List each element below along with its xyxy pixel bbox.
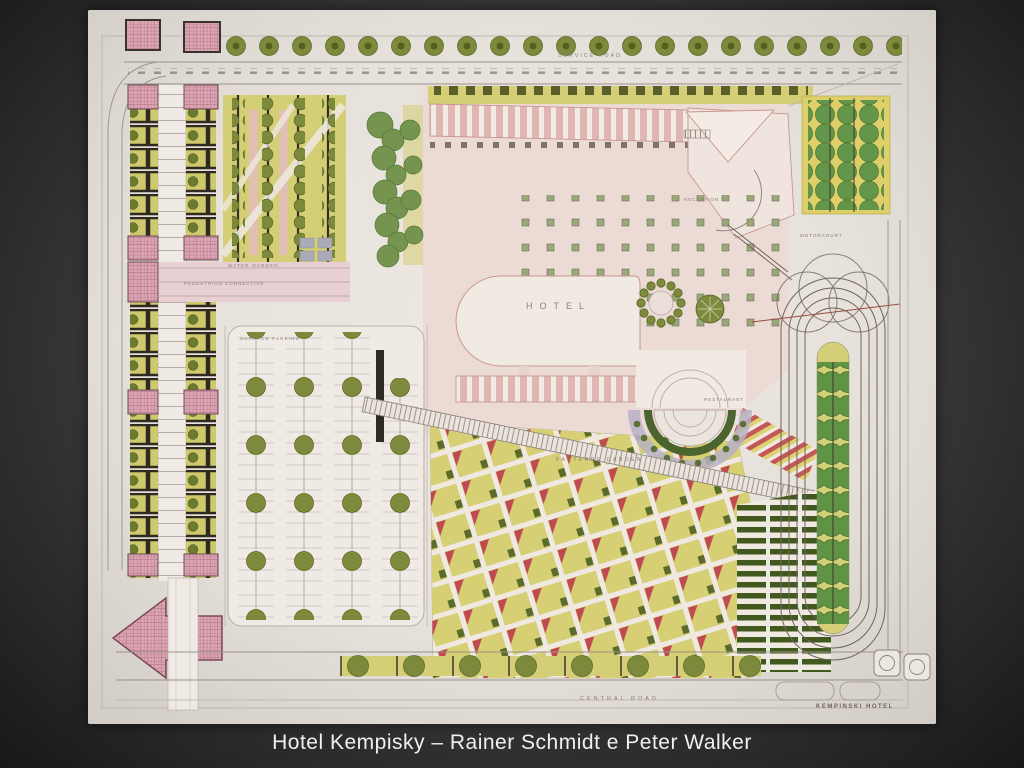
label-reception: RECEPTION [684, 198, 719, 203]
allee-garden-zone [223, 95, 346, 262]
surface-parking-zone [225, 326, 427, 626]
label-surface-parking: SURFACE PARKING [240, 337, 300, 342]
label-central-road: CENTRAL ROAD [580, 697, 659, 703]
hotel-north-wing [430, 104, 688, 152]
site-plan-drawing [88, 10, 936, 724]
slide-caption: Hotel Kempisky – Rainer Schmidt e Peter … [0, 731, 1024, 755]
north-lawn-strip [428, 86, 813, 104]
label-kempinski-hotel: KEMPINSKI HOTEL [816, 704, 894, 710]
label-hotel: HOTEL [526, 302, 591, 311]
label-water-garden: WATER GARDEN [228, 264, 279, 269]
slide: { "slide": { "caption": "Hotel Kempisky … [0, 0, 1024, 768]
motorcourt-bosque [802, 96, 890, 214]
label-service-road: SERVICE ROAD [558, 54, 622, 59]
label-parterre-garden: PARTERRE GARDEN [556, 458, 643, 463]
site-plan-photo: SERVICE ROAD WATER GARDEN PEDESTRIAN CON… [88, 10, 936, 724]
hotel-main-block [456, 276, 648, 402]
restaurant-terrace [628, 350, 752, 472]
label-restaurant: RESTAURANT [704, 398, 744, 403]
label-pedestrian-connective: PEDESTRIAN CONNECTIVE [184, 282, 265, 287]
label-motorcourt: MOTORCOURT [800, 234, 843, 239]
